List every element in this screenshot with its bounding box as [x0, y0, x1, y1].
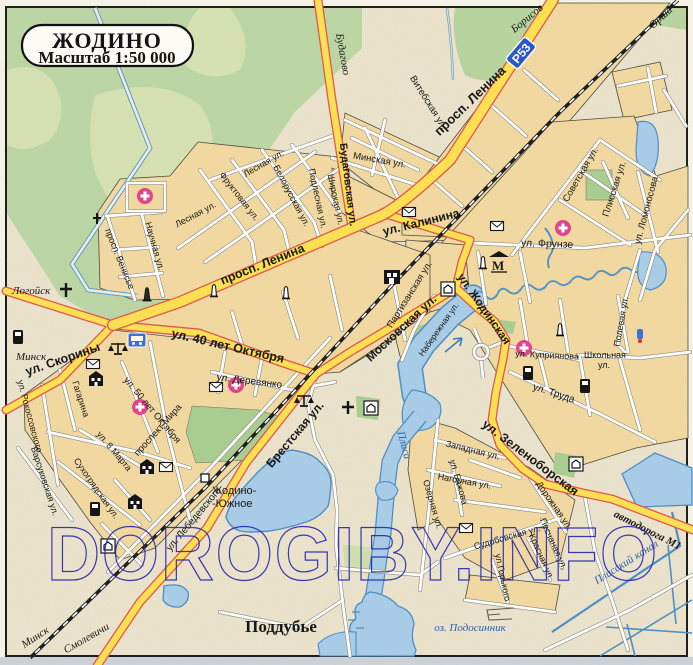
svg-text:Масштаб 1:50 000: Масштаб 1:50 000 — [38, 48, 175, 67]
svg-text:DOROGIBY.INFO: DOROGIBY.INFO — [47, 512, 659, 597]
